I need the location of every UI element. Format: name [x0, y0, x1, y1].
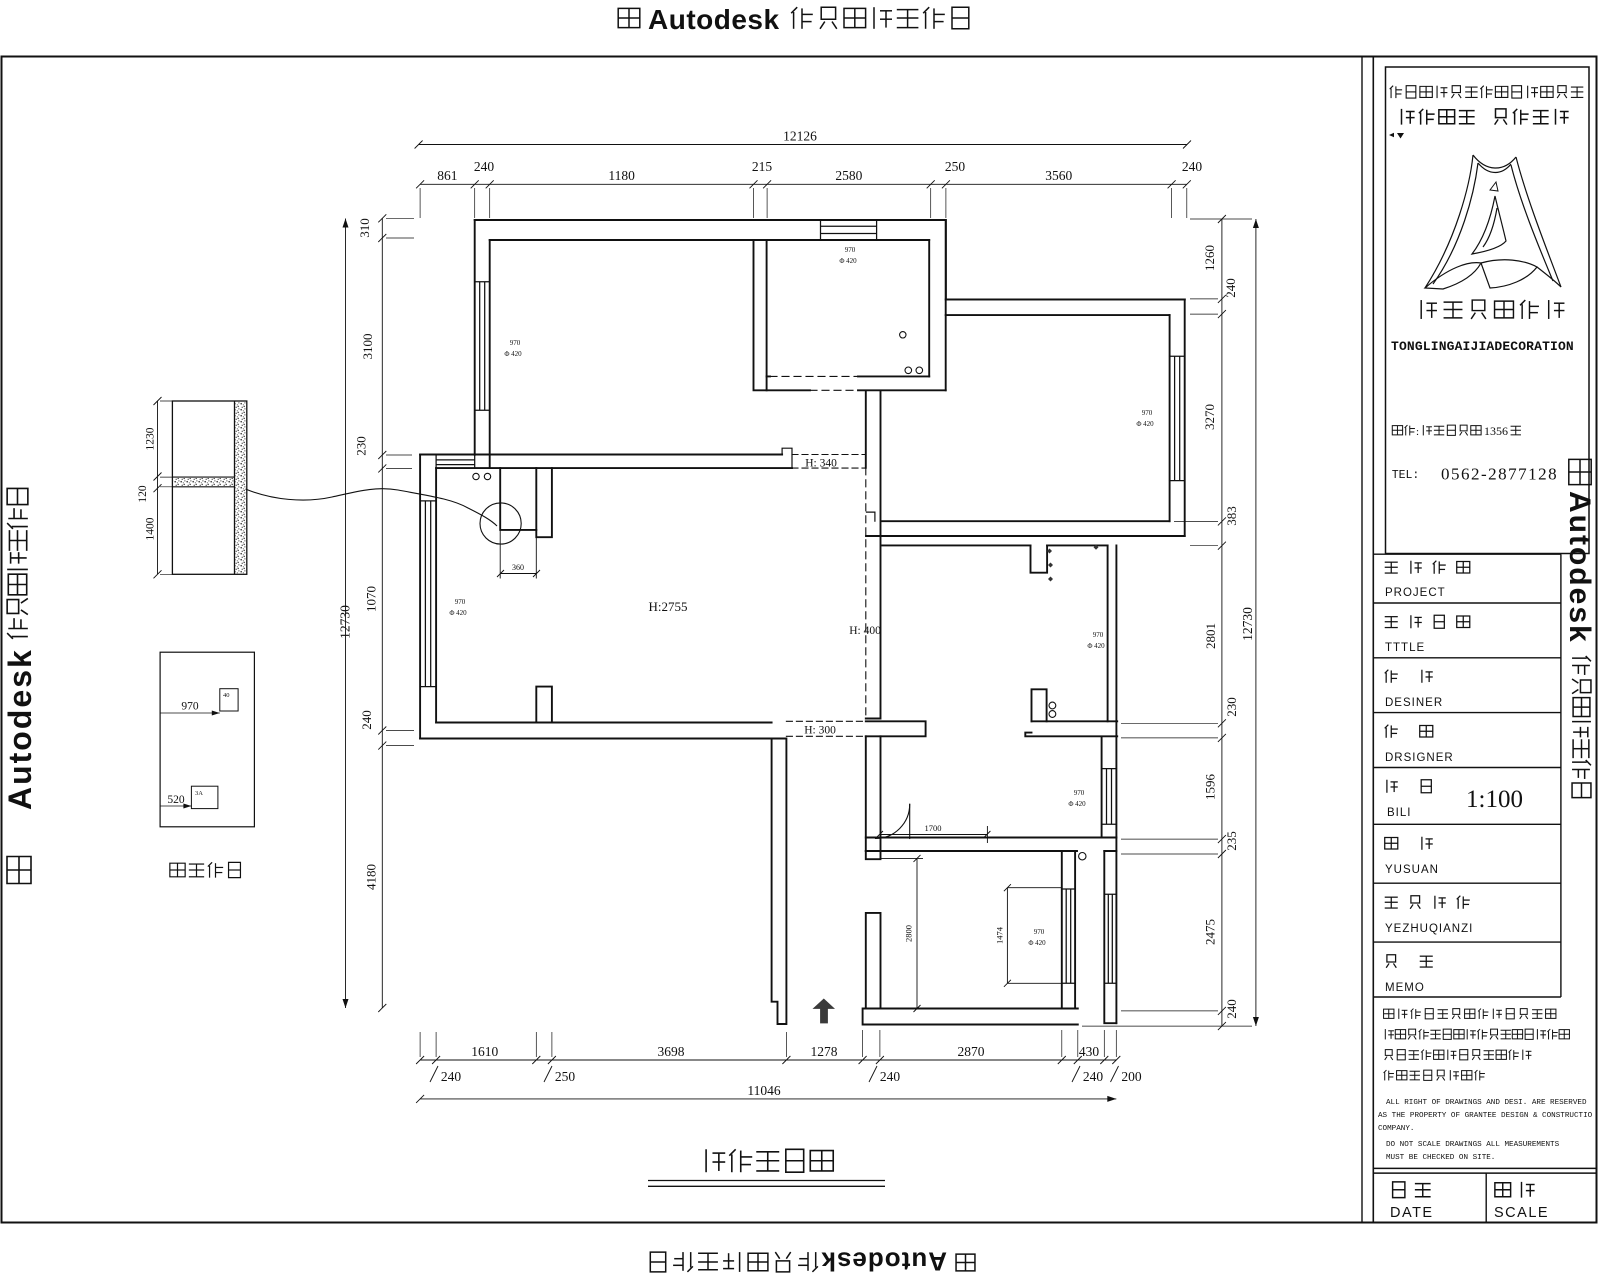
svg-text:MUST BE CHECKED ON SITE.: MUST BE CHECKED ON SITE. [1386, 1154, 1495, 1162]
svg-text:Autodesk: Autodesk [648, 4, 780, 35]
svg-text:240: 240 [1182, 159, 1203, 174]
svg-text:970: 970 [1034, 928, 1045, 936]
svg-text:970: 970 [1074, 789, 1085, 797]
svg-text:Φ 420: Φ 420 [1068, 800, 1086, 808]
svg-text:12126: 12126 [783, 129, 817, 144]
svg-text:1474: 1474 [995, 926, 1005, 944]
svg-text:12730: 12730 [338, 605, 353, 639]
svg-text:12730: 12730 [1240, 607, 1255, 641]
svg-text:H: 400: H: 400 [849, 625, 881, 637]
svg-text:250: 250 [555, 1069, 576, 1084]
svg-text:1610: 1610 [471, 1044, 498, 1059]
svg-text:240: 240 [1224, 999, 1239, 1019]
svg-text:1278: 1278 [811, 1044, 838, 1059]
svg-text:970: 970 [1093, 631, 1104, 639]
svg-text:970: 970 [455, 598, 466, 606]
svg-text:1230: 1230 [145, 427, 157, 450]
svg-text:H: 340: H: 340 [805, 458, 837, 470]
svg-text:2801: 2801 [1203, 623, 1218, 649]
svg-text:2870: 2870 [958, 1044, 985, 1059]
svg-text:40: 40 [223, 692, 230, 699]
svg-text:DRSIGNER: DRSIGNER [1385, 752, 1454, 764]
svg-text:240: 240 [1083, 1069, 1104, 1084]
svg-text:200: 200 [1121, 1069, 1142, 1084]
svg-text:11046: 11046 [747, 1083, 780, 1098]
svg-text:3A: 3A [195, 790, 203, 797]
svg-text:3100: 3100 [360, 334, 375, 360]
svg-text:1400: 1400 [145, 517, 157, 540]
svg-text:310: 310 [357, 218, 372, 238]
svg-text:3698: 3698 [658, 1044, 685, 1059]
svg-text:430: 430 [1079, 1044, 1100, 1059]
svg-text:2800: 2800 [904, 925, 914, 942]
svg-text:120: 120 [137, 485, 149, 503]
svg-text:235: 235 [1224, 831, 1239, 851]
svg-text:DATE: DATE [1390, 1205, 1434, 1221]
svg-text:0562-2877128: 0562-2877128 [1441, 465, 1558, 484]
svg-text:Autodesk: Autodesk [1563, 491, 1596, 644]
svg-text:1180: 1180 [608, 168, 635, 183]
svg-text:ALL RIGHT OF DRAWINGS AND DESI: ALL RIGHT OF DRAWINGS AND DESI. ARE RESE… [1386, 1099, 1587, 1107]
svg-text:Φ 420: Φ 420 [1087, 642, 1105, 650]
svg-text:861: 861 [437, 168, 457, 183]
svg-text:4180: 4180 [363, 864, 378, 890]
svg-text:970: 970 [1142, 409, 1153, 417]
svg-text:1070: 1070 [363, 586, 378, 612]
svg-text:1356: 1356 [1484, 424, 1508, 438]
svg-text:3560: 3560 [1045, 168, 1072, 183]
svg-text:DO NOT SCALE DRAWINGS ALL MEAS: DO NOT SCALE DRAWINGS ALL MEASUREMENTS [1386, 1141, 1560, 1149]
svg-text:Φ 420: Φ 420 [504, 350, 522, 358]
svg-text:BILI: BILI [1387, 807, 1411, 819]
svg-text:MEMO: MEMO [1385, 982, 1425, 994]
svg-text:Autodesk: Autodesk [2, 648, 38, 810]
svg-text:TONGLINGAIJIADECORATION: TONGLINGAIJIADECORATION [1391, 339, 1574, 354]
svg-text:AS THE PROPERTY OF GRANTEE DES: AS THE PROPERTY OF GRANTEE DESIGN & CONS… [1378, 1112, 1593, 1120]
svg-text:SCALE: SCALE [1494, 1205, 1549, 1221]
svg-text:2580: 2580 [835, 168, 862, 183]
svg-text:TTTLE: TTTLE [1385, 642, 1425, 654]
svg-text:DESINER: DESINER [1385, 697, 1443, 709]
svg-text:Φ 420: Φ 420 [1028, 939, 1046, 947]
svg-text:240: 240 [880, 1069, 901, 1084]
svg-text:215: 215 [752, 159, 773, 174]
svg-text:970: 970 [181, 701, 199, 713]
svg-text:COMPANY.: COMPANY. [1378, 1125, 1414, 1133]
svg-text:Φ 420: Φ 420 [449, 609, 467, 617]
svg-text:230: 230 [354, 436, 369, 456]
svg-text:TEL:: TEL: [1392, 469, 1420, 482]
svg-text:240: 240 [359, 710, 374, 730]
svg-text:1700: 1700 [925, 823, 942, 833]
svg-text:970: 970 [845, 246, 856, 254]
svg-text:360: 360 [512, 563, 524, 572]
svg-text:H:2755: H:2755 [649, 599, 688, 614]
svg-text:520: 520 [167, 794, 185, 806]
svg-text:YUSUAN: YUSUAN [1385, 864, 1439, 876]
svg-text:YEZHUQIANZI: YEZHUQIANZI [1385, 923, 1473, 935]
svg-text:970: 970 [510, 339, 521, 347]
svg-text:1260: 1260 [1202, 245, 1217, 271]
svg-text:240: 240 [441, 1069, 462, 1084]
svg-text:383: 383 [1224, 506, 1239, 526]
svg-text:Φ 420: Φ 420 [1136, 420, 1154, 428]
svg-text:Φ 420: Φ 420 [839, 257, 857, 265]
svg-text::: : [1416, 426, 1419, 438]
svg-text:1596: 1596 [1203, 774, 1218, 801]
svg-text:Autodesk: Autodesk [821, 1247, 947, 1277]
svg-text:240: 240 [1223, 278, 1238, 298]
svg-text:240: 240 [474, 159, 495, 174]
svg-text:250: 250 [945, 159, 966, 174]
svg-text:3270: 3270 [1202, 404, 1217, 430]
svg-text:2475: 2475 [1203, 919, 1218, 945]
svg-text:H: 300: H: 300 [804, 725, 836, 737]
svg-text:PROJECT: PROJECT [1385, 587, 1446, 599]
svg-text:1:100: 1:100 [1466, 786, 1523, 813]
svg-text:230: 230 [1224, 697, 1239, 717]
